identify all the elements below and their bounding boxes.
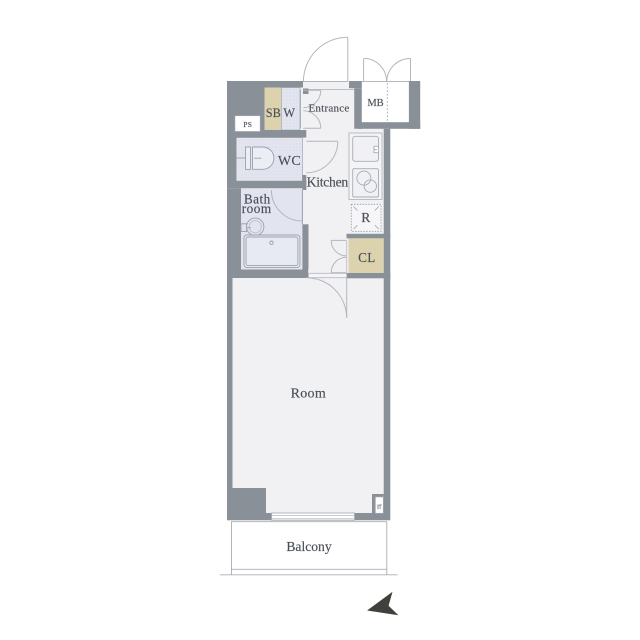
svg-text:CL: CL [358, 250, 375, 265]
svg-text:SB: SB [266, 106, 281, 120]
svg-text:room: room [242, 201, 272, 216]
svg-text:W: W [283, 106, 295, 120]
svg-text:Entrance: Entrance [308, 103, 349, 115]
svg-text:Kitchen: Kitchen [307, 175, 349, 190]
svg-text:WC: WC [278, 154, 301, 169]
svg-text:PS: PS [243, 120, 252, 129]
svg-text:MB: MB [367, 98, 383, 109]
svg-text:Room: Room [291, 387, 326, 402]
svg-text:Balcony: Balcony [286, 539, 332, 554]
svg-text:R: R [361, 210, 371, 225]
